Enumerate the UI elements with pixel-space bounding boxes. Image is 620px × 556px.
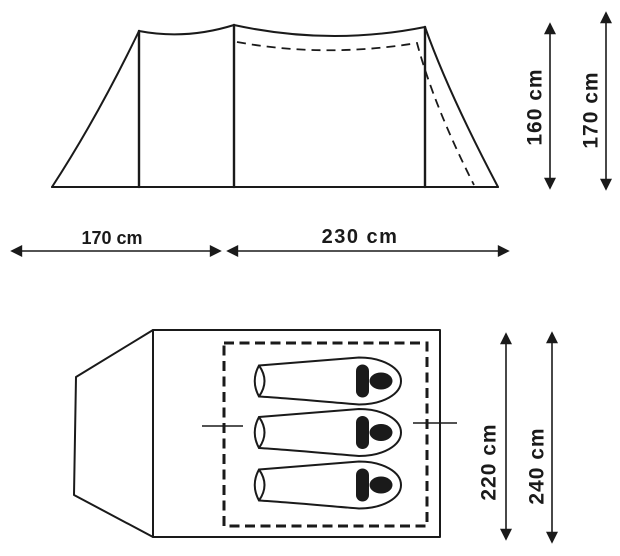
dim-label-width-right: 230 cm [322, 226, 399, 248]
sleeping-bag-3 [255, 462, 401, 509]
side-view-dimensions: 170 cm 230 cm 160 cm 170 cm [12, 13, 606, 251]
canopy-left-curve [52, 31, 139, 187]
dim-label-height-outer: 170 cm [579, 71, 602, 148]
dim-label-depth-inner: 220 cm [477, 423, 500, 500]
dim-label-depth-outer: 240 cm [525, 427, 548, 504]
tent-floor-outline [153, 330, 440, 537]
tent-side-view [52, 25, 498, 187]
dim-label-height-inner: 160 cm [523, 68, 546, 145]
vestibule-outline [74, 330, 153, 537]
dim-label-width-left: 170 cm [81, 228, 142, 248]
diagram-canvas: 170 cm 230 cm 160 cm 170 cm 220 cm 240 c… [0, 0, 620, 556]
top-view-dimensions: 220 cm 240 cm [477, 333, 552, 542]
sleeping-bag-1 [255, 358, 401, 405]
sleeping-bag-2 [255, 409, 401, 456]
canopy-ridge-left-span [139, 25, 234, 34]
canopy-right-curve [425, 27, 498, 187]
tent-top-view [74, 330, 457, 537]
tent-dimensions-diagram: 170 cm 230 cm 160 cm 170 cm 220 cm 240 c… [0, 0, 620, 556]
canopy-ridge-right-span [234, 25, 425, 36]
